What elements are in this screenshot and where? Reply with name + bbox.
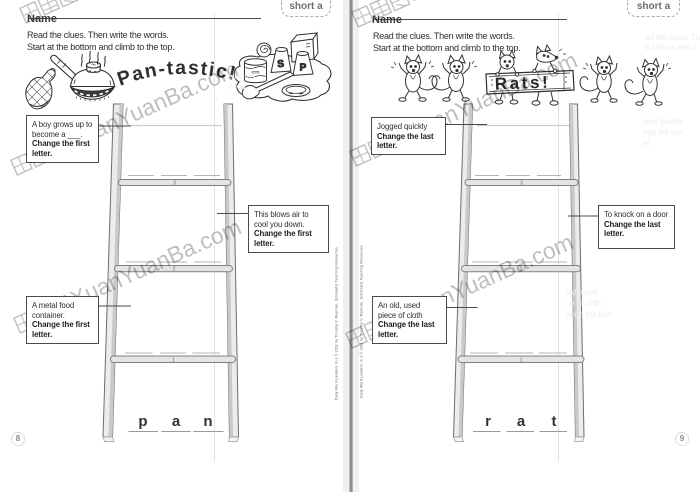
svg-text:P: P — [300, 63, 307, 74]
svg-text:Daily Word Ladders: K-1 © 2011: Daily Word Ladders: K-1 © 2011 by Timoth… — [335, 247, 339, 400]
svg-text:XuanYuanBa.com: XuanYuanBa.com — [72, 0, 251, 2]
svg-text:1: 1 — [520, 357, 523, 363]
svg-text:XuanYuanBa.com: XuanYuanBa.com — [404, 0, 583, 6]
svg-text:3: 3 — [520, 181, 523, 187]
svg-text:3: 3 — [173, 181, 176, 187]
svg-text:1: 1 — [172, 357, 175, 363]
svg-text:Daily Word Ladders: K-1 © 2011: Daily Word Ladders: K-1 © 2011 by Timoth… — [360, 245, 364, 398]
svg-text:S: S — [277, 59, 285, 71]
